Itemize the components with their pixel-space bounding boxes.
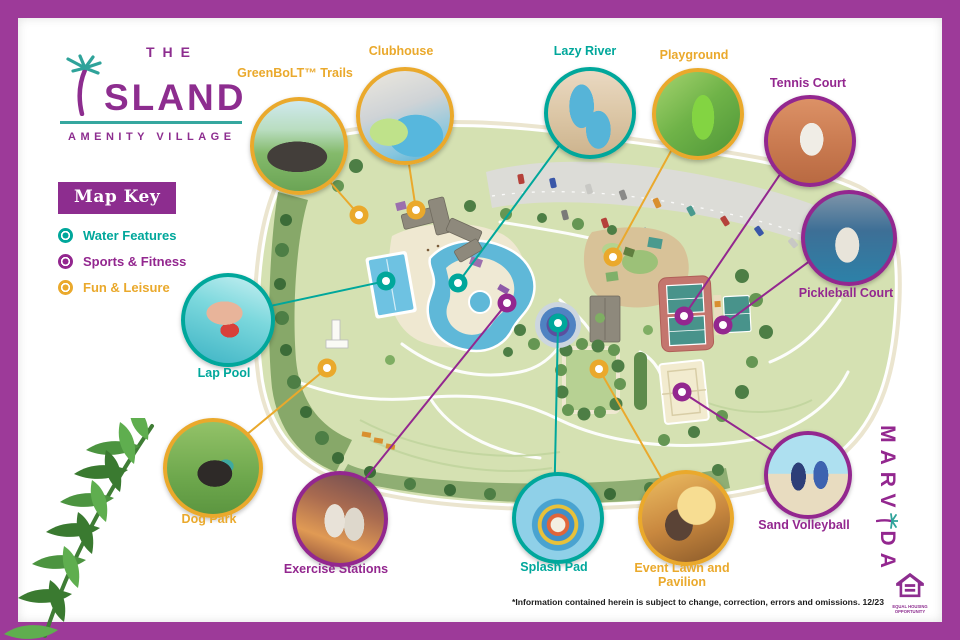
- callout-label-tennis-court: Tennis Court: [748, 76, 868, 90]
- water-features-dot-icon: [58, 228, 73, 243]
- callout-label-sand-volleyball: Sand Volleyball: [744, 518, 864, 532]
- callout-label-playground: Playground: [634, 48, 754, 62]
- equal-housing-house-icon: [895, 572, 925, 598]
- palm-tree-letter-i-icon: [876, 513, 898, 529]
- map-key: Map Key Water Features Sports & Fitness …: [58, 182, 186, 306]
- callout-label-clubhouse: Clubhouse: [341, 44, 461, 58]
- logo-tagline: AMENITY VILLAGE: [68, 131, 260, 143]
- callout-photo-pickleball-court: [801, 190, 897, 286]
- callout-label-dog-park: Dog Park: [149, 512, 269, 526]
- callout-photo-lap-pool: [181, 273, 275, 367]
- callout-photo-clubhouse: [356, 67, 454, 165]
- legend-item-sports: Sports & Fitness: [58, 254, 186, 269]
- callout-label-pickleball-court: Pickleball Court: [781, 286, 911, 300]
- callout-photo-sand-volleyball: [764, 431, 852, 519]
- fun-leisure-dot-icon: [58, 280, 73, 295]
- callout-label-exercise-stations: Exercise Stations: [266, 562, 406, 576]
- legend-item-water: Water Features: [58, 228, 186, 243]
- callout-label-lap-pool: Lap Pool: [164, 366, 284, 380]
- callout-label-event-lawn: Event Lawn and Pavilion: [627, 561, 737, 590]
- callout-label-lazy-river: Lazy River: [525, 44, 645, 58]
- disclaimer-text: *Information contained herein is subject…: [512, 597, 884, 607]
- callout-photo-tennis-court: [764, 95, 856, 187]
- callout-photo-exercise-stations: [292, 471, 388, 567]
- callout-photo-splash-pad: [512, 472, 604, 564]
- callout-photo-lazy-river: [544, 67, 636, 159]
- callout-label-splash-pad: Splash Pad: [494, 560, 614, 574]
- callout-photo-event-lawn: [638, 470, 734, 566]
- callout-photo-dog-park: [163, 418, 263, 518]
- palm-tree-icon: [60, 54, 104, 116]
- logo-island-text: SLAND: [104, 79, 246, 116]
- callout-photo-playground: [652, 68, 744, 160]
- sports-fitness-dot-icon: [58, 254, 73, 269]
- legend-item-fun: Fun & Leisure: [58, 280, 186, 295]
- the-island-logo: THE SLAND AMENITY VILLAGE: [60, 44, 260, 143]
- equal-housing-logo: EQUAL HOUSING OPPORTUNITY: [892, 572, 928, 615]
- map-key-title: Map Key: [58, 182, 176, 214]
- callout-photo-greenbolt-trails: [250, 97, 348, 195]
- logo-divider: [60, 121, 242, 124]
- marvida-logo: MARVDA: [865, 425, 909, 575]
